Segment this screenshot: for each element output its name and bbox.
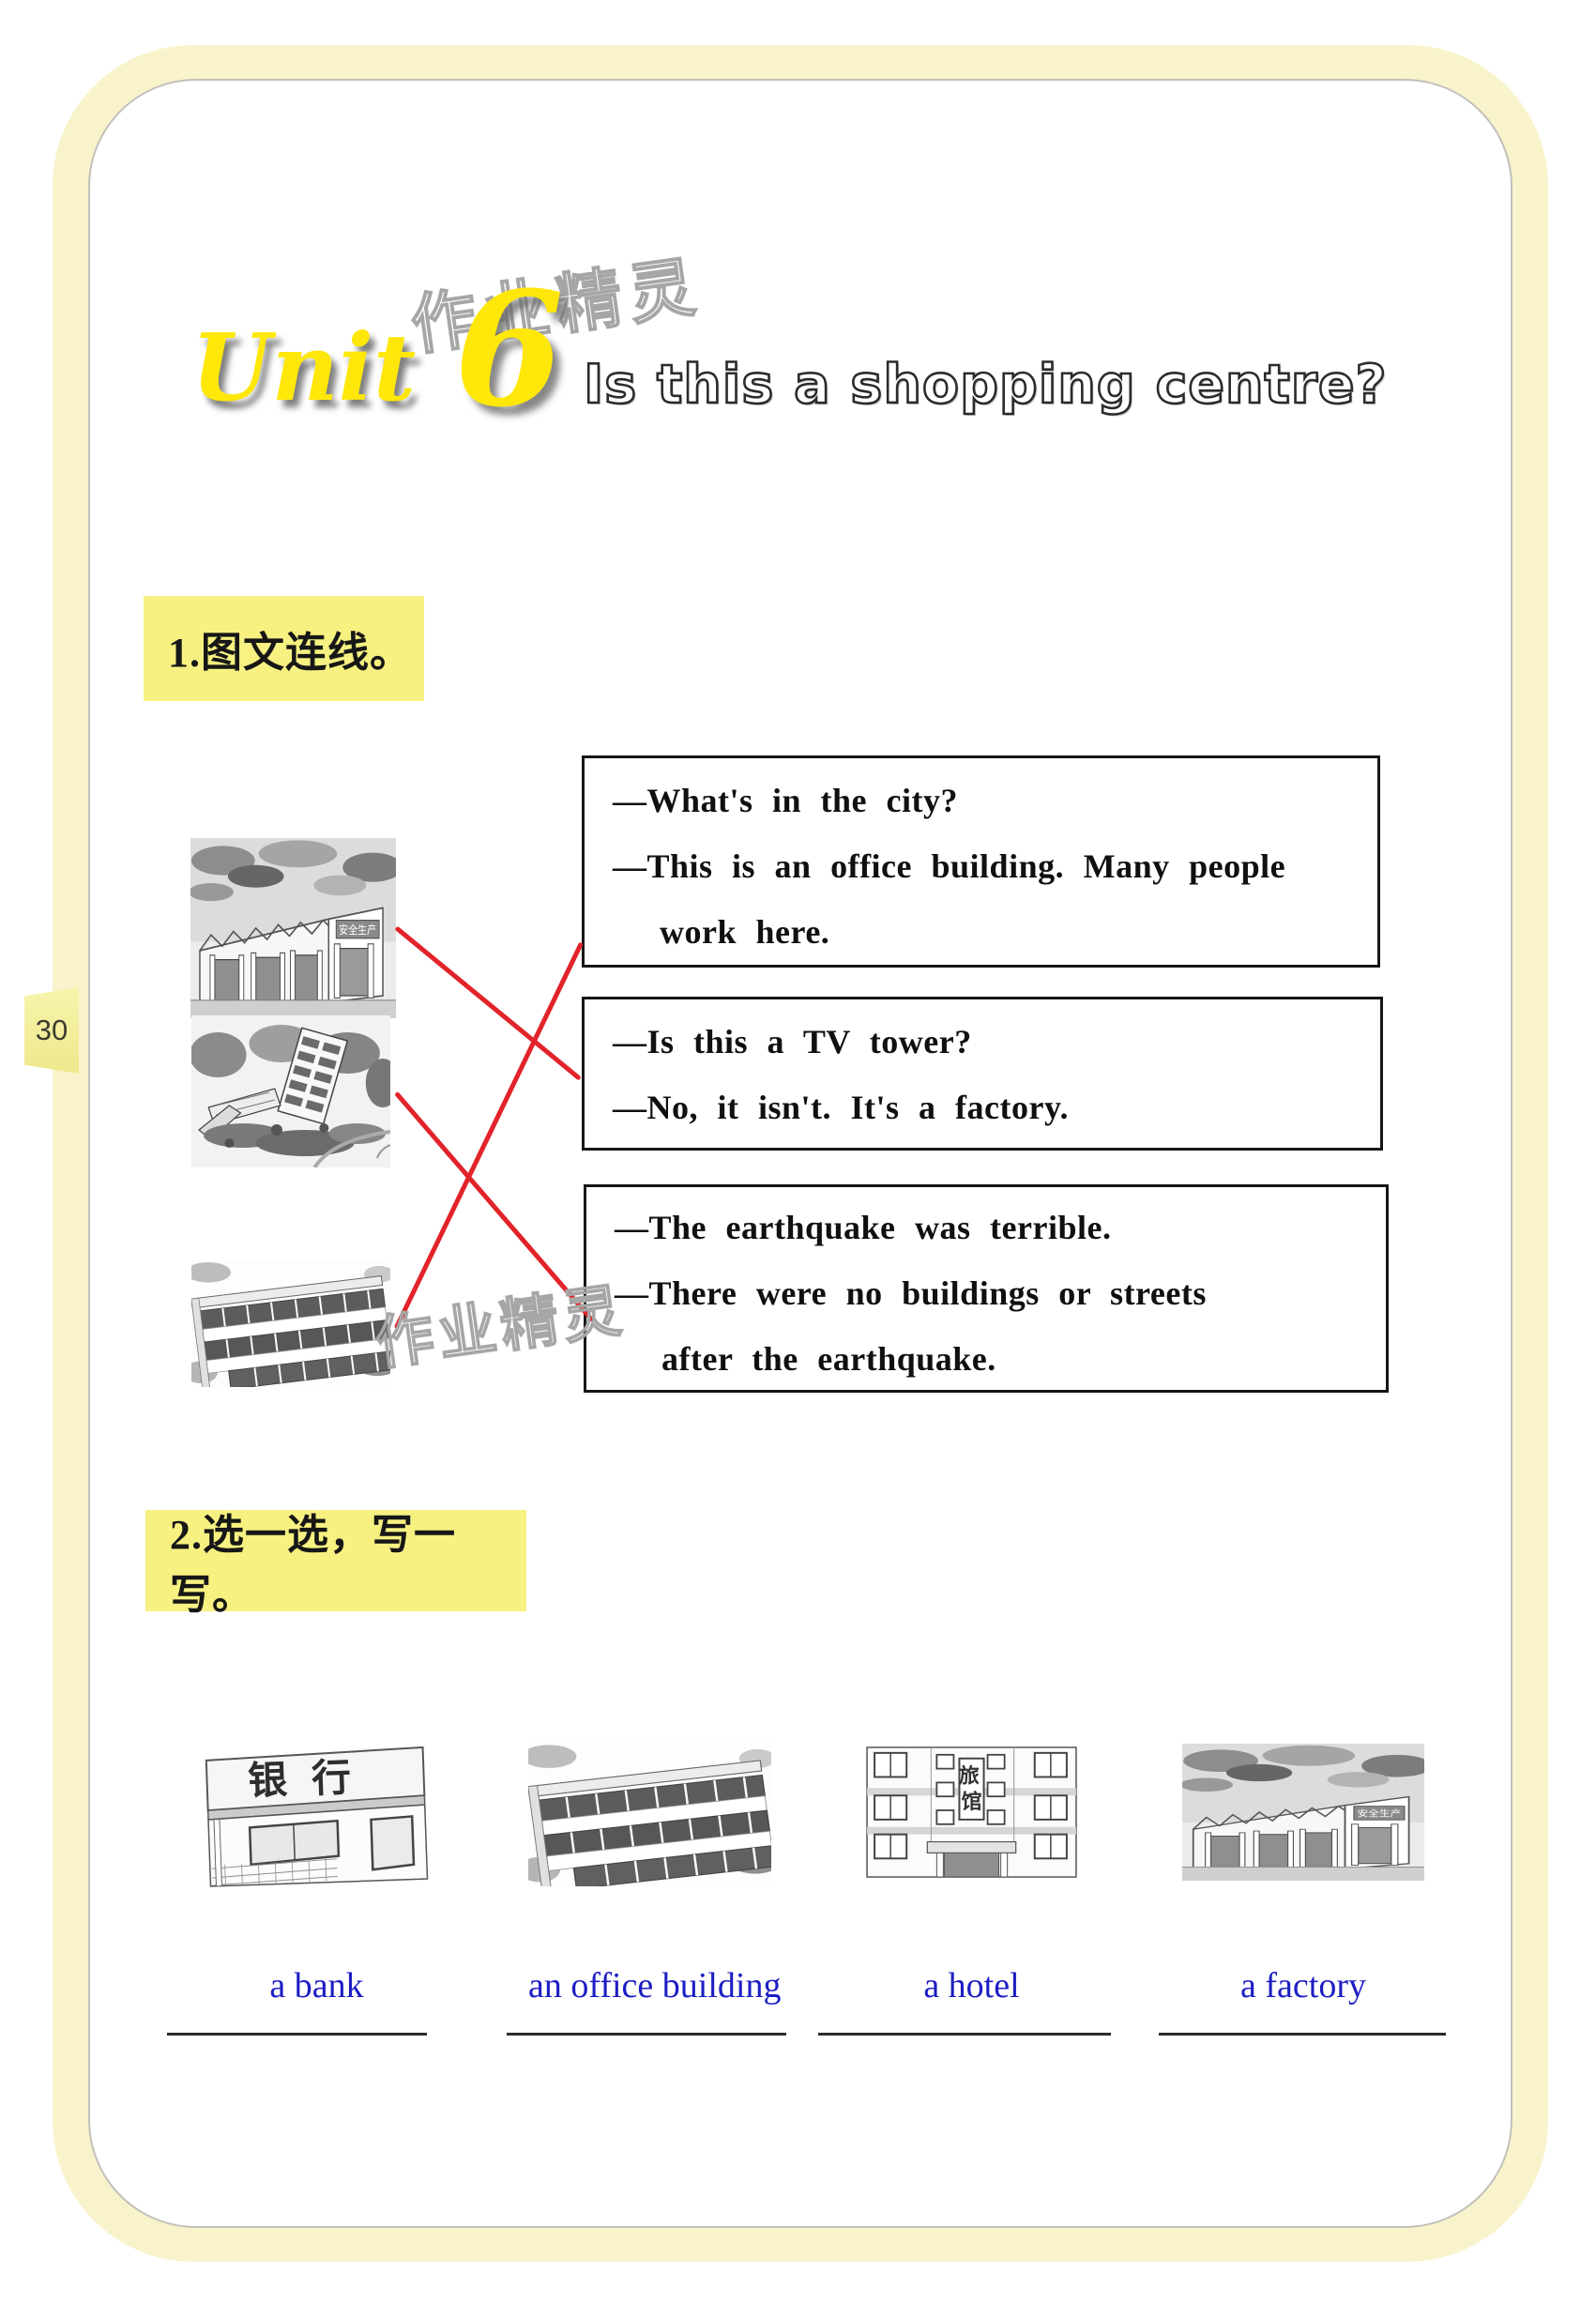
earthquake-illustration [191,1015,390,1167]
bank-sign-text: 银行 [248,1755,376,1803]
section2-heading: 2.选一选，写一写。 [145,1510,526,1611]
page-number-tab: 30 [24,987,79,1074]
dialogue-line: —Is this a TV tower? [585,1009,1380,1075]
dialogue-line: —The earthquake was terrible. [586,1195,1386,1260]
office-building-illustration [528,1742,771,1886]
answer-label-hotel: a hotel [854,1965,1089,2006]
picture-factory: 安全生产 [190,838,396,1018]
dialogue-box-office: —What's in the city? —This is an office … [582,755,1380,968]
answer-blank-line [818,2033,1111,2036]
bank-illustration: 银行 [195,1744,438,1888]
answer-blank-line [167,2033,427,2036]
dialogue-line: —This is an office building. Many people [585,833,1377,899]
picture-bank: 银行 [195,1744,438,1888]
picture-factory: 安全生产 [1182,1744,1424,1881]
answer-blank-line [1159,2033,1446,2036]
picture-office-building [528,1742,771,1886]
picture-office-building [191,1259,390,1387]
office-building-illustration [191,1259,390,1387]
answer-blank-line [507,2033,786,2036]
hotel-illustration: 旅 馆 [854,1742,1089,1881]
picture-hotel: 旅 馆 [854,1742,1089,1881]
dialogue-line: —There were no buildings or streets [586,1260,1386,1326]
unit-title: Is this a shopping centre? [584,355,1388,417]
factory-illustration: 安全生产 [190,838,396,1018]
answer-label-factory: a factory [1182,1965,1424,2006]
dialogue-line: —What's in the city? [585,768,1377,833]
answer-label-bank: a bank [195,1965,438,2006]
dialogue-box-earthquake: —The earthquake was terrible. —There wer… [584,1184,1389,1393]
factory-sign-text: 安全生产 [1357,1808,1401,1819]
picture-earthquake [191,1015,390,1167]
unit-number: 6 [454,270,564,428]
page-number: 30 [36,1014,68,1047]
section1-heading: 1.图文连线。 [144,596,424,701]
dialogue-line: —No, it isn't. It's a factory. [585,1075,1380,1140]
factory-illustration: 安全生产 [1182,1744,1424,1881]
dialogue-line: after the earthquake. [586,1326,1386,1392]
dialogue-box-factory: —Is this a TV tower? —No, it isn't. It's… [582,997,1383,1151]
unit-word: Unit [191,323,416,415]
factory-sign-text: 安全生产 [339,923,376,937]
answer-label-office-building: an office building [528,1965,771,2006]
dialogue-line: work here. [585,899,1377,965]
